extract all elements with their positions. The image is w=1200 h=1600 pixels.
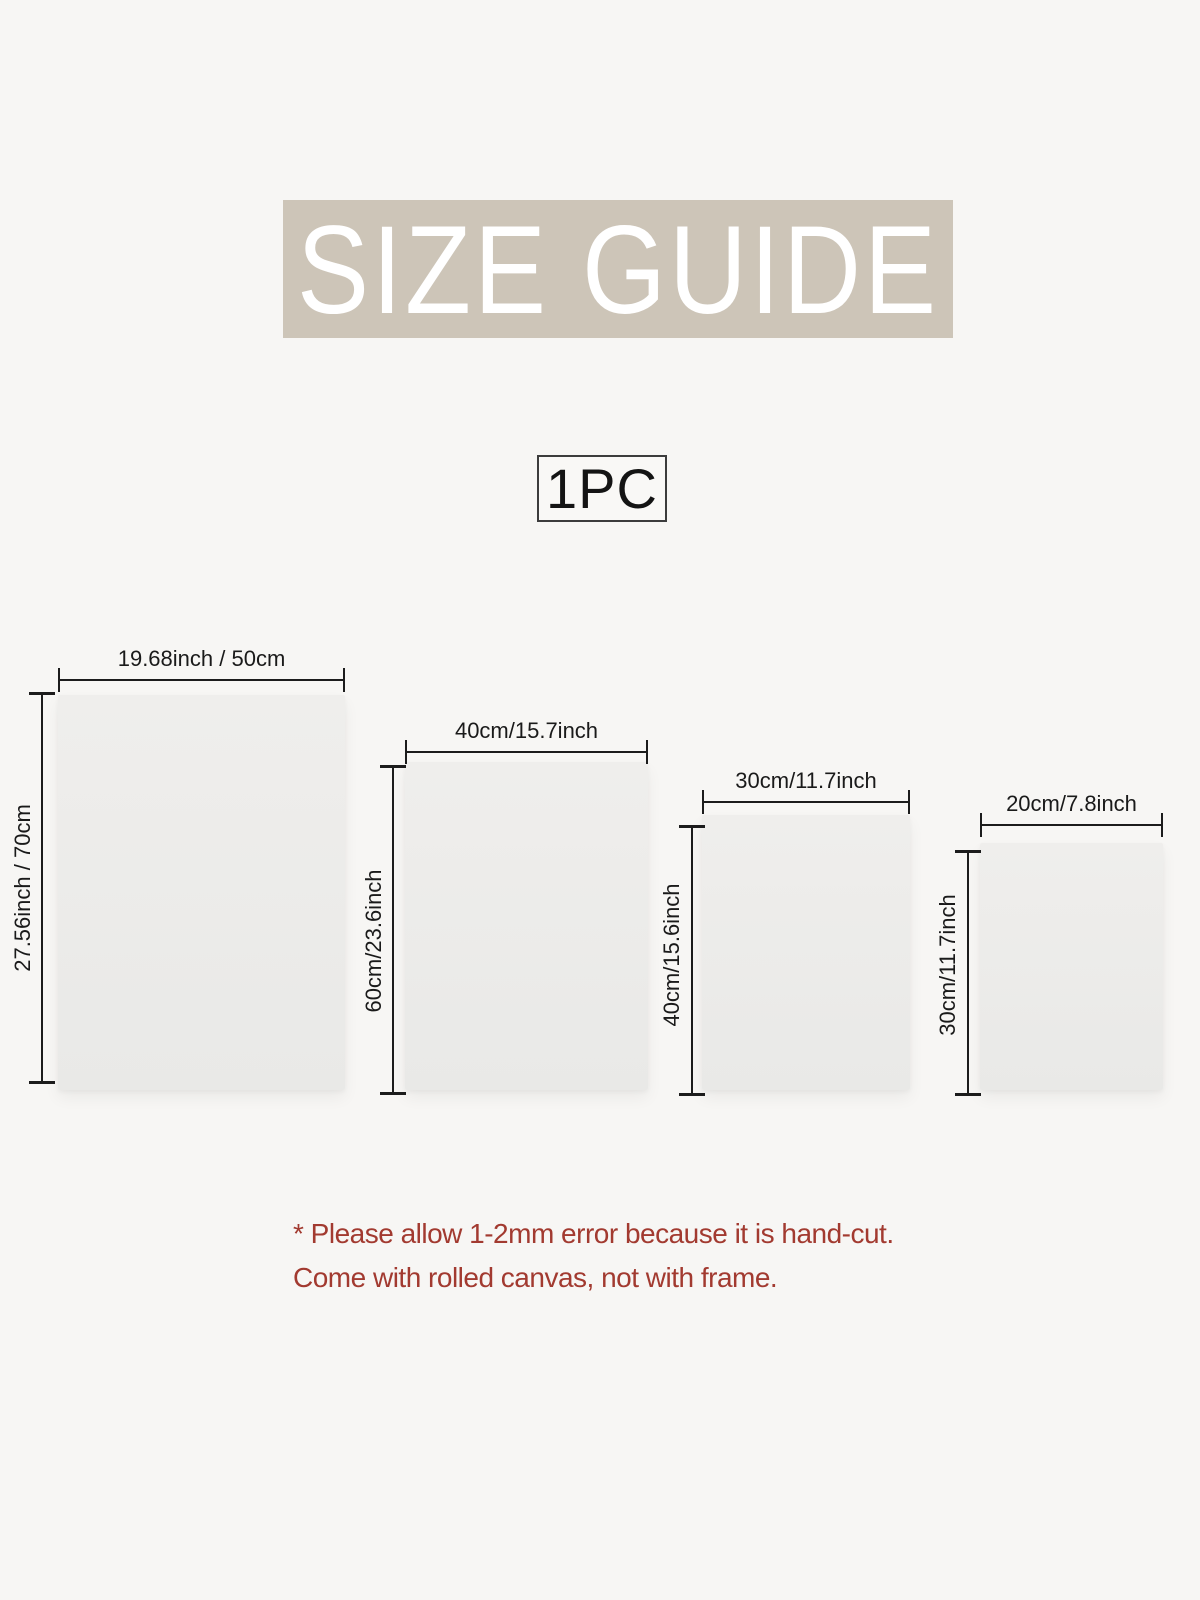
- note-line-2: Come with rolled canvas, not with frame.: [293, 1256, 1053, 1300]
- width-dimension-line: [58, 679, 345, 681]
- width-dimension-line: [702, 801, 910, 803]
- canvas-swatch-20x30: [980, 843, 1163, 1090]
- height-dimension-label: 60cm/23.6inch: [361, 731, 387, 1151]
- height-dimension-line: [41, 692, 43, 1084]
- handcut-note: * Please allow 1-2mm error because it is…: [293, 1212, 1053, 1300]
- height-dimension-line: [691, 825, 693, 1096]
- note-line-1: * Please allow 1-2mm error because it is…: [293, 1212, 1053, 1256]
- width-dimension-line: [405, 751, 648, 753]
- canvas-swatch-50x70: [58, 695, 345, 1090]
- height-dimension-line: [392, 765, 394, 1095]
- canvas-swatch-30x40: [702, 815, 910, 1090]
- height-dimension-line: [967, 850, 969, 1096]
- size-guide-title: SIZE GUIDE: [297, 197, 939, 342]
- quantity-label: 1PC: [546, 456, 658, 521]
- quantity-badge: 1PC: [537, 455, 667, 522]
- size-guide-page: SIZE GUIDE 1PC 19.68inch / 50cm 27.56inc…: [0, 0, 1200, 1600]
- width-dimension-label: 40cm/15.7inch: [405, 718, 648, 744]
- width-dimension-label: 19.68inch / 50cm: [58, 646, 345, 672]
- height-dimension-label: 27.56inch / 70cm: [10, 678, 36, 1098]
- size-guide-banner: SIZE GUIDE: [283, 200, 953, 338]
- height-dimension-label: 40cm/15.6inch: [659, 745, 685, 1165]
- width-dimension-line: [980, 824, 1163, 826]
- canvas-swatch-40x60: [405, 762, 648, 1090]
- width-dimension-label: 20cm/7.8inch: [980, 791, 1163, 817]
- height-dimension-label: 30cm/11.7inch: [935, 755, 961, 1175]
- width-dimension-label: 30cm/11.7inch: [702, 768, 910, 794]
